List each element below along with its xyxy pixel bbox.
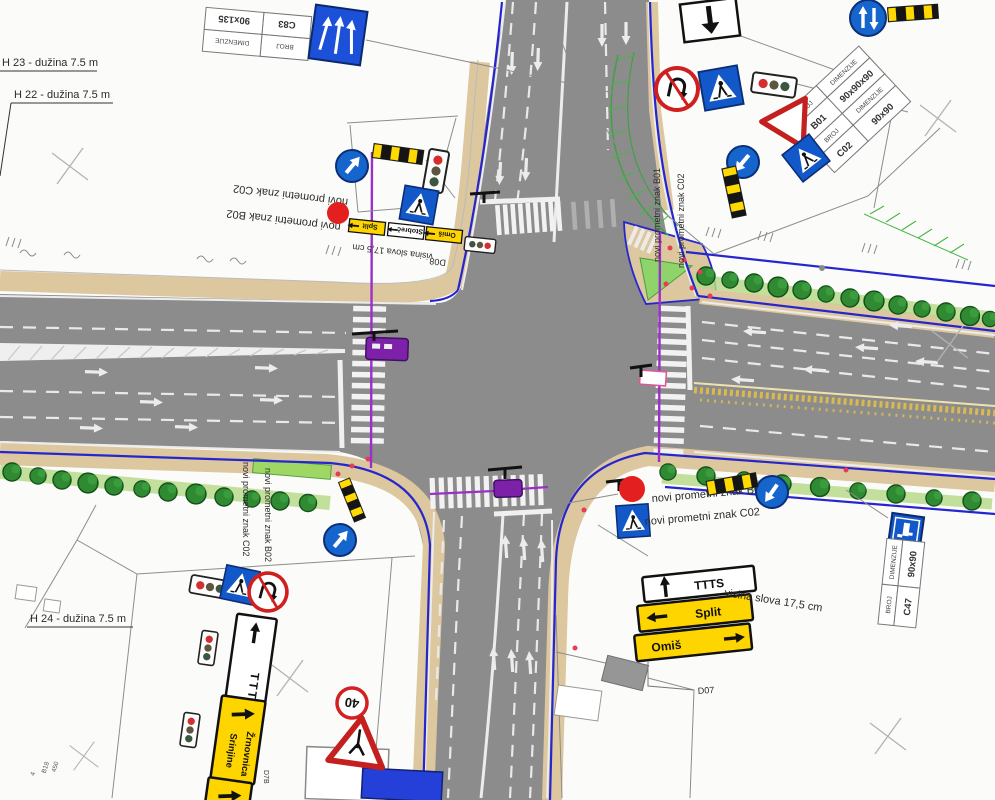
two-way-traffic-sign [850,0,886,36]
traffic-light-icon [464,236,496,253]
stop-sign-marker [619,476,645,502]
traffic-plan-drawing: BROJ DIMENZIJE C83 90x135 H 23 - dužina … [0,0,995,800]
signal-controller-south [494,480,523,498]
plate-text: Split [694,604,721,621]
label-h24: H 24 - dužina 7.5 m [30,613,126,625]
shed [15,585,37,602]
pedestrian-crossing-sign [399,185,438,224]
hazard-marker [888,4,939,21]
table-cell: C47 [902,598,915,616]
sign-text: 40 [344,695,360,712]
label-new-sign-c02: novi prometni znak C02 [676,173,686,268]
signal-controller-west [366,337,409,360]
label-d07: D07 [697,685,714,696]
label-h23: H 23 - dužina 7.5 m [2,57,98,69]
table-cell: C83 [278,18,296,30]
sign-table-c83: BROJ DIMENZIJE C83 90x135 [202,7,311,60]
stop-sign-marker [327,202,349,224]
label-h22: H 22 - dužina 7.5 m [14,89,110,101]
label-d7b: D7B [262,770,269,784]
traffic-plan-sheet: BROJ DIMENZIJE C83 90x135 H 23 - dužina … [0,0,995,800]
pedestrian-crossing-sign [698,65,743,110]
small-building [554,685,602,721]
lane-direction-sign-c83 [308,5,367,66]
shed [43,599,61,613]
label-d08: D08 [429,256,447,268]
detector-box [640,370,667,386]
one-way-arrow-sign [680,0,740,42]
label-new-sign-b02: novi prometni znak B02 [263,468,273,562]
label-new-sign-b01: novi prometni znak B01 [652,168,662,262]
blue-structure [361,768,442,800]
label-new-sign-c02: novi prometni znak C02 [241,462,251,557]
